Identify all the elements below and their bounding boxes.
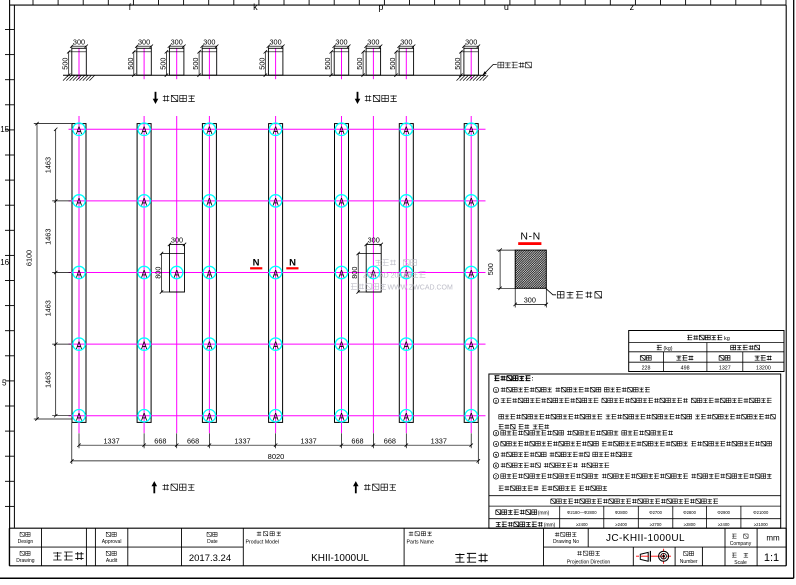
- svg-text:500: 500: [191, 58, 200, 70]
- svg-text:A: A: [141, 412, 148, 424]
- svg-text:300: 300: [73, 37, 85, 46]
- svg-text:A: A: [403, 125, 410, 137]
- svg-text:1337: 1337: [431, 437, 447, 446]
- svg-text:JC-KHII-1000UL: JC-KHII-1000UL: [606, 533, 685, 544]
- svg-text:300: 300: [171, 37, 183, 46]
- svg-text:KHII-1000UL: KHII-1000UL: [311, 553, 369, 564]
- svg-text:(mm): (mm): [538, 510, 550, 516]
- svg-text:A: A: [141, 197, 148, 209]
- svg-text:13200: 13200: [756, 365, 771, 371]
- svg-text:kg: kg: [724, 336, 730, 342]
- svg-text:A: A: [141, 268, 148, 280]
- svg-text:A: A: [273, 268, 280, 280]
- svg-text:500: 500: [453, 58, 462, 70]
- svg-text:z: z: [630, 2, 635, 12]
- svg-text:Φ2700: Φ2700: [649, 510, 662, 515]
- svg-text:Design: Design: [18, 539, 34, 545]
- svg-text:500: 500: [486, 263, 495, 275]
- svg-text:Company: Company: [730, 541, 752, 547]
- svg-text:1463: 1463: [43, 157, 52, 173]
- svg-text:≥2400: ≥2400: [718, 522, 730, 527]
- svg-text:Product Model: Product Model: [246, 539, 279, 545]
- svg-text:WWW.ZWCAD.COM: WWW.ZWCAD.COM: [388, 284, 453, 291]
- svg-text:A: A: [403, 412, 410, 424]
- svg-text:15: 15: [0, 125, 9, 134]
- svg-text:A: A: [76, 125, 83, 137]
- svg-text:Audit: Audit: [106, 558, 118, 564]
- svg-text:A: A: [206, 197, 213, 209]
- svg-text:p: p: [378, 2, 383, 12]
- svg-text:A: A: [339, 412, 346, 424]
- svg-text:6100: 6100: [24, 250, 33, 266]
- svg-text:500: 500: [388, 58, 397, 70]
- svg-text:A: A: [76, 268, 83, 280]
- svg-text:300: 300: [138, 37, 150, 46]
- svg-text:A: A: [403, 197, 410, 209]
- svg-text:500: 500: [158, 58, 167, 70]
- svg-text:A: A: [468, 125, 475, 137]
- svg-text:k: k: [253, 2, 258, 12]
- svg-text:Φ2180—Φ2800: Φ2180—Φ2800: [567, 510, 597, 515]
- svg-text:A: A: [141, 340, 148, 352]
- svg-text:A: A: [273, 125, 280, 137]
- svg-text:500: 500: [323, 58, 332, 70]
- svg-text:2017.3.24: 2017.3.24: [189, 553, 231, 564]
- svg-text:16: 16: [0, 258, 9, 267]
- svg-text:1337: 1337: [300, 437, 316, 446]
- svg-text:≥2400: ≥2400: [576, 522, 588, 527]
- svg-text:A: A: [273, 412, 280, 424]
- svg-text:N: N: [253, 257, 260, 268]
- svg-text:668: 668: [351, 437, 363, 446]
- svg-text:A: A: [206, 412, 213, 424]
- svg-text:A: A: [403, 340, 410, 352]
- svg-text:1337: 1337: [103, 437, 119, 446]
- svg-text:668: 668: [154, 437, 166, 446]
- svg-text:300: 300: [465, 37, 477, 46]
- svg-text:A: A: [206, 340, 213, 352]
- svg-text:1463: 1463: [43, 300, 52, 316]
- svg-text:300: 300: [367, 37, 379, 46]
- svg-text:N: N: [289, 257, 296, 268]
- svg-text:Φ2900: Φ2900: [717, 510, 730, 515]
- svg-text:A: A: [174, 268, 181, 280]
- svg-text:A: A: [468, 268, 475, 280]
- svg-text:A: A: [339, 340, 346, 352]
- svg-text:Number: Number: [680, 559, 698, 565]
- svg-text:300: 300: [524, 296, 536, 305]
- svg-text:Parts Name: Parts Name: [407, 539, 435, 545]
- svg-text:300: 300: [203, 37, 215, 46]
- svg-text:≥2400: ≥2400: [615, 522, 627, 527]
- svg-text:Φ2800: Φ2800: [683, 510, 696, 515]
- svg-text:Approval: Approval: [102, 539, 122, 545]
- svg-text:228: 228: [642, 365, 651, 371]
- svg-text:A: A: [273, 197, 280, 209]
- svg-text:(kg): (kg): [664, 346, 673, 352]
- svg-text:300: 300: [368, 235, 380, 244]
- svg-text:500: 500: [126, 58, 135, 70]
- svg-text:500: 500: [355, 58, 364, 70]
- svg-text:A: A: [76, 412, 83, 424]
- svg-text:668: 668: [187, 437, 199, 446]
- svg-text:8020: 8020: [268, 452, 285, 461]
- svg-text:Projection Direction: Projection Direction: [567, 559, 611, 565]
- svg-text:800: 800: [350, 267, 359, 279]
- svg-text:A: A: [206, 125, 213, 137]
- svg-text:Date: Date: [207, 539, 218, 545]
- svg-text:A: A: [206, 268, 213, 280]
- svg-text:300: 300: [270, 37, 282, 46]
- svg-text:1327: 1327: [719, 365, 731, 371]
- svg-text:A: A: [141, 125, 148, 137]
- svg-text:A: A: [339, 268, 346, 280]
- svg-text:668: 668: [384, 437, 396, 446]
- svg-text:Scale: Scale: [734, 560, 747, 566]
- svg-text:≥2800: ≥2800: [684, 522, 696, 527]
- svg-text:300: 300: [400, 37, 412, 46]
- svg-text:1337: 1337: [234, 437, 250, 446]
- svg-text:A: A: [468, 197, 475, 209]
- svg-text:A: A: [339, 125, 346, 137]
- svg-text:mm: mm: [766, 534, 780, 543]
- svg-text:Φ2800: Φ2800: [615, 510, 628, 515]
- svg-text:≥2700: ≥2700: [650, 522, 662, 527]
- svg-text:1463: 1463: [43, 372, 52, 388]
- svg-text:300: 300: [171, 235, 183, 244]
- svg-text:498: 498: [681, 365, 690, 371]
- svg-text:A: A: [339, 197, 346, 209]
- svg-text:500: 500: [257, 58, 266, 70]
- svg-text:500: 500: [61, 58, 70, 70]
- svg-text:N-N: N-N: [520, 231, 540, 243]
- svg-text:800: 800: [153, 267, 162, 279]
- svg-text:u: u: [504, 2, 509, 12]
- svg-text:A: A: [468, 340, 475, 352]
- svg-text:Drawing: Drawing: [16, 558, 35, 564]
- svg-text:Φ21000: Φ21000: [753, 510, 769, 515]
- svg-text:≥21000: ≥21000: [754, 522, 769, 527]
- svg-text:1:1: 1:1: [764, 552, 779, 564]
- svg-text:300: 300: [335, 37, 347, 46]
- svg-text:A: A: [76, 197, 83, 209]
- svg-text::: :: [532, 377, 534, 383]
- svg-text:A: A: [273, 340, 280, 352]
- svg-text:Drawing No: Drawing No: [553, 539, 579, 545]
- svg-text:5: 5: [2, 379, 7, 388]
- svg-text:1463: 1463: [43, 229, 52, 245]
- svg-text:A: A: [76, 340, 83, 352]
- svg-text:A: A: [468, 412, 475, 424]
